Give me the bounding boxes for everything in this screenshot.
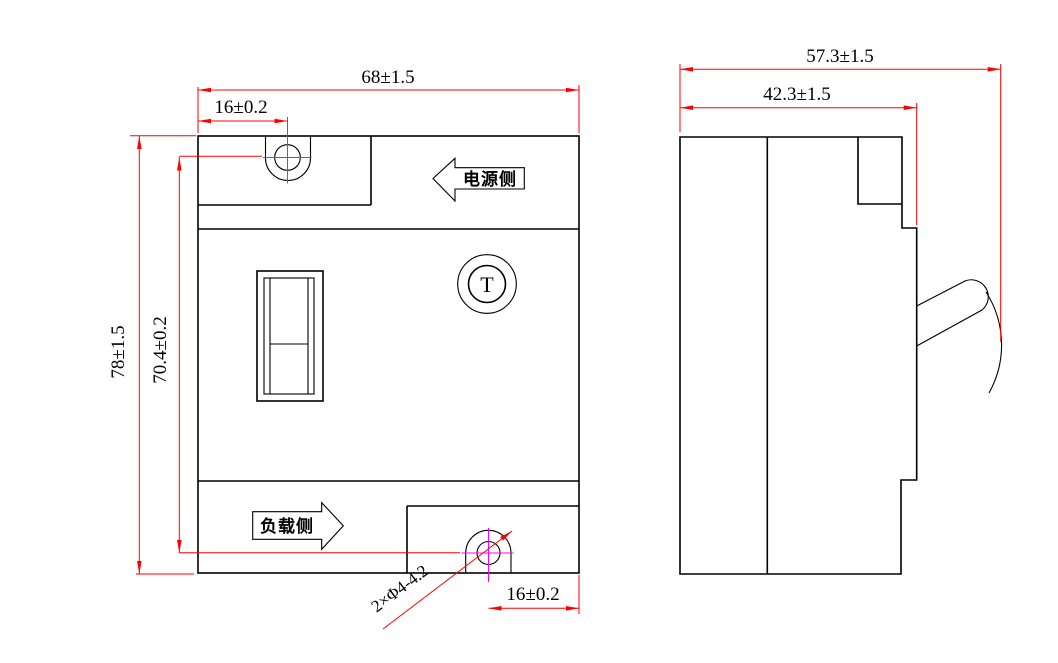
arrowhead-right <box>275 119 288 124</box>
dim-hole-spacing: 70.4±0.2 <box>150 156 460 553</box>
arrowhead-right <box>566 88 579 93</box>
load-side-label: 负载侧 <box>260 516 314 536</box>
handle-swing-arc <box>986 292 1002 393</box>
side-top-terminal-step <box>858 137 902 204</box>
dim-body-depth-lines <box>680 103 917 225</box>
rocker-switch-bezel <box>257 271 323 401</box>
arrowhead-left <box>198 88 211 93</box>
dim-overall-depth: 57.3±1.5 <box>680 46 1001 342</box>
arrowhead-down <box>177 540 182 553</box>
front-view-dimensions: 68±1.5 16±0.2 78±1.5 70.4±0.2 16 <box>108 67 579 629</box>
load-side-arrow: 负载侧 <box>253 503 344 550</box>
dim-overall-height-text: 78±1.5 <box>108 325 129 378</box>
dim-top-hole-offset-text: 16±0.2 <box>214 97 267 118</box>
side-view <box>680 137 1002 574</box>
arrowhead-up <box>137 136 142 149</box>
arrowhead-down <box>137 561 142 574</box>
mounting-hole-callout: 2×Φ4-4.2 <box>368 531 512 629</box>
dim-bottom-hole-offset: 16±0.2 <box>489 575 580 614</box>
arrowhead-right <box>566 606 579 611</box>
rocker-switch <box>257 271 323 401</box>
arrowhead-left <box>680 67 693 72</box>
dim-overall-depth-lines <box>680 64 1001 342</box>
arrowhead-up <box>177 158 182 171</box>
arrowhead-left <box>680 105 693 110</box>
dim-overall-width-text: 68±1.5 <box>361 67 414 88</box>
arrowhead-right <box>904 105 917 110</box>
arrowhead-left <box>198 119 211 124</box>
rocker-switch-rails <box>270 278 308 394</box>
arrowhead-left <box>489 606 502 611</box>
power-side-arrow: 电源侧 <box>433 158 524 201</box>
dim-body-depth-text: 42.3±1.5 <box>763 84 830 105</box>
mounting-hole-callout-text: 2×Φ4-4.2 <box>368 561 432 616</box>
breaker-dimension-drawing: T 电源侧 负载侧 68±1.5 16±0.2 <box>0 0 1058 663</box>
dim-hole-spacing-text: 70.4±0.2 <box>150 316 171 383</box>
front-bottom-right-tab <box>407 506 579 573</box>
technical-drawing-canvas: T 电源侧 负载侧 68±1.5 16±0.2 <box>0 0 1058 663</box>
power-side-label: 电源侧 <box>463 169 517 189</box>
toggle-handle <box>917 280 989 346</box>
dim-overall-depth-text: 57.3±1.5 <box>806 46 873 67</box>
side-view-dimensions: 57.3±1.5 42.3±1.5 <box>680 46 1001 342</box>
rocker-switch-frame <box>264 278 314 394</box>
front-view: T 电源侧 负载侧 <box>198 117 579 582</box>
front-body-outline <box>198 136 579 573</box>
dim-hole-spacing-lines <box>179 156 460 553</box>
dim-bottom-hole-offset-text: 16±0.2 <box>506 584 559 605</box>
arrowhead-right <box>988 67 1001 72</box>
side-body-outline <box>680 137 917 574</box>
test-button-label: T <box>480 272 494 297</box>
test-button: T <box>458 255 517 314</box>
dim-top-hole-offset: 16±0.2 <box>198 97 288 123</box>
